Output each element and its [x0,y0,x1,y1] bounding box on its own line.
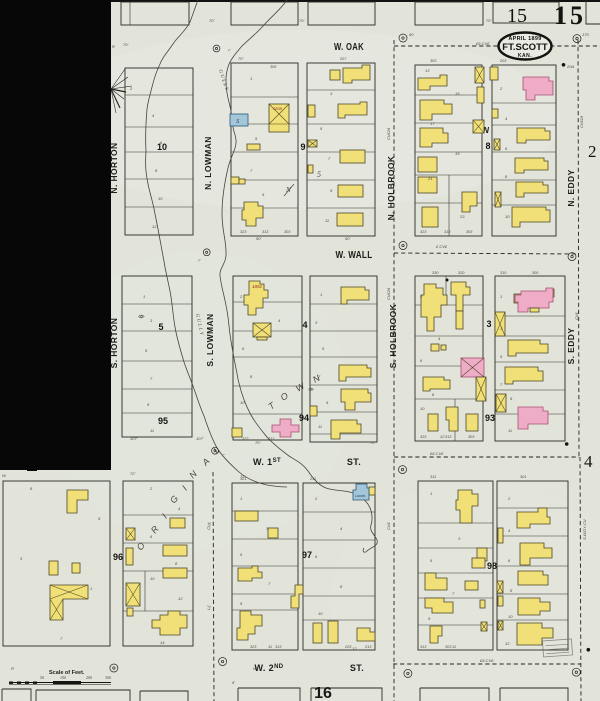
svg-text:9: 9 [300,142,305,152]
svg-text:4: 4 [584,452,593,471]
svg-text:CV£26: CV£26 [386,287,391,300]
svg-text:15: 15 [554,1,586,30]
svg-text:S. LOWMAN: S. LOWMAN [205,313,215,366]
svg-text:70': 70' [486,18,491,23]
svg-text:2: 2 [588,142,597,161]
svg-text:4: 4 [302,320,307,330]
svg-text:£6 CV£: £6 CV£ [475,41,490,46]
svg-text:11: 11 [452,644,456,649]
svg-text:313: 313 [275,645,282,649]
svg-text:N. HOLBROOK: N. HOLBROOK [386,155,396,220]
svg-text:320: 320 [458,271,465,275]
svg-text:70': 70' [370,440,375,445]
svg-text:70': 70' [123,42,128,47]
svg-text:50': 50' [345,236,350,241]
svg-text:96: 96 [113,552,123,562]
svg-text:5: 5 [317,170,321,179]
svg-text:313: 313 [420,645,427,649]
svg-text:15: 15 [507,5,527,27]
svg-text:CV£: CV£ [206,521,212,530]
svg-text:S. HOLBROOK: S. HOLBROOK [388,303,398,368]
svg-text:303: 303 [468,435,475,439]
svg-text:1838: 1838 [273,106,283,111]
svg-text:8: 8 [485,141,490,151]
svg-text:21: 21 [427,176,432,181]
svg-text:93: 93 [485,413,495,423]
svg-text:6': 6' [232,680,235,685]
svg-text:1: 1 [90,586,92,591]
svg-text:107': 107' [196,436,204,441]
svg-text:95: 95 [158,416,168,426]
svg-text:10: 10 [420,406,425,411]
svg-text:10: 10 [318,611,323,616]
svg-text:12: 12 [152,224,157,229]
svg-text:£ CV£: £ CV£ [435,244,448,249]
svg-text:23: 23 [459,214,465,219]
svg-text:10: 10 [150,576,155,581]
svg-text:R: R [112,44,115,49]
svg-text:17: 17 [430,121,435,126]
svg-text:11: 11 [325,218,329,223]
svg-text:ST.: ST. [350,663,364,673]
svg-text:10: 10 [508,614,513,619]
svg-text:S. EDDY: S. EDDY [566,328,576,365]
svg-text:207: 207 [339,57,347,61]
svg-text:323: 323 [240,230,247,234]
svg-text:303: 303 [466,230,473,234]
svg-text:322: 322 [242,437,249,441]
svg-text:13: 13 [425,68,430,73]
svg-text:N. LOWMAN: N. LOWMAN [203,136,213,190]
svg-text:301: 301 [520,475,526,479]
svg-text:W. OAK: W. OAK [334,42,364,53]
svg-text:N: N [285,186,291,194]
svg-text:19: 19 [455,151,460,156]
svg-text:12: 12 [178,596,183,601]
svg-text:S.££DY‑CV: S.££DY‑CV [582,519,587,540]
svg-text:10: 10 [240,400,245,405]
svg-text:1892: 1892 [252,284,263,289]
svg-text:CV£26: CV£26 [579,115,584,128]
svg-text:211: 211 [309,477,316,481]
svg-text:70': 70' [209,18,214,23]
svg-text:12: 12 [352,646,357,651]
svg-text:1: 1 [500,294,502,299]
svg-text:312: 312 [268,437,275,441]
svg-text:11: 11 [318,424,322,429]
svg-text:W. WALL: W. WALL [336,250,373,261]
svg-text:313: 313 [444,230,451,234]
svg-text:310: 310 [500,271,507,275]
svg-text:11: 11 [508,428,512,433]
svg-text:323: 323 [420,435,427,439]
svg-text:203: 203 [344,645,352,649]
svg-text:313: 313 [262,230,269,234]
svg-text:98: 98 [487,561,497,571]
svg-text:Scale of Feet.: Scale of Feet. [49,670,85,676]
svg-text:£6.CV£.: £6.CV£. [479,658,494,663]
svg-text:200: 200 [86,675,92,680]
svg-text:50: 50 [40,675,44,680]
svg-text:16: 16 [314,685,332,701]
svg-text:97: 97 [302,550,312,560]
svg-text:KAN.: KAN. [518,53,532,59]
svg-text:323: 323 [250,645,257,649]
svg-text:72': 72' [130,471,135,476]
svg-text:1: 1 [143,294,145,299]
svg-text:14: 14 [160,640,165,645]
svg-text:ST.: ST. [347,457,361,467]
svg-text:313: 313 [445,435,452,439]
svg-text:300: 300 [105,675,111,680]
svg-text:213: 213 [364,645,372,649]
svg-text:70': 70' [299,18,304,23]
svg-text:CV£: CV£ [574,311,579,320]
svg-text:1: 1 [320,292,322,297]
svg-text:N. EDDY: N. EDDY [566,169,576,206]
svg-text:170: 170 [582,32,589,37]
svg-text:R: R [11,666,14,671]
svg-text:10: 10 [505,214,510,219]
svg-text:321: 321 [240,477,246,481]
svg-text:107': 107' [130,436,138,441]
svg-text:94: 94 [299,413,309,423]
svg-text:N. HORTON: N. HORTON [109,142,119,193]
svg-text:203: 203 [499,59,507,63]
svg-text:15: 15 [455,91,460,96]
svg-text:FT.SCOTT: FT.SCOTT [502,42,548,53]
svg-text:11: 11 [150,428,154,433]
svg-text:Laund.: Laund. [355,494,366,498]
svg-text:100: 100 [60,675,66,680]
svg-text:20A: 20A [566,64,574,69]
svg-text:90: 90 [409,32,414,37]
svg-text:5: 5 [158,322,163,332]
svg-text:S. HORTON: S. HORTON [109,318,119,369]
svg-text:1: 1 [240,496,242,501]
svg-text:330: 330 [432,271,439,275]
svg-text:303: 303 [445,645,452,649]
svg-text:1: 1 [430,491,432,496]
svg-text:£6 CV£: £6 CV£ [429,451,444,456]
svg-text:303: 303 [430,59,437,63]
svg-text:303: 303 [284,230,291,234]
svg-text:300: 300 [532,271,539,275]
svg-text:70': 70' [255,440,260,445]
svg-text:305: 305 [270,65,277,69]
svg-text:12: 12 [505,641,510,646]
svg-text:323: 323 [420,230,427,234]
svg-text:311: 311 [430,475,436,479]
svg-text:3: 3 [486,319,491,329]
svg-text:CV£26: CV£26 [386,127,391,140]
svg-text:70': 70' [238,56,243,61]
svg-text:50': 50' [256,236,261,241]
svg-text:11: 11 [268,644,272,649]
svg-text:CV£: CV£ [386,521,391,530]
svg-text:10: 10 [158,196,163,201]
svg-text:1: 1 [250,76,252,81]
